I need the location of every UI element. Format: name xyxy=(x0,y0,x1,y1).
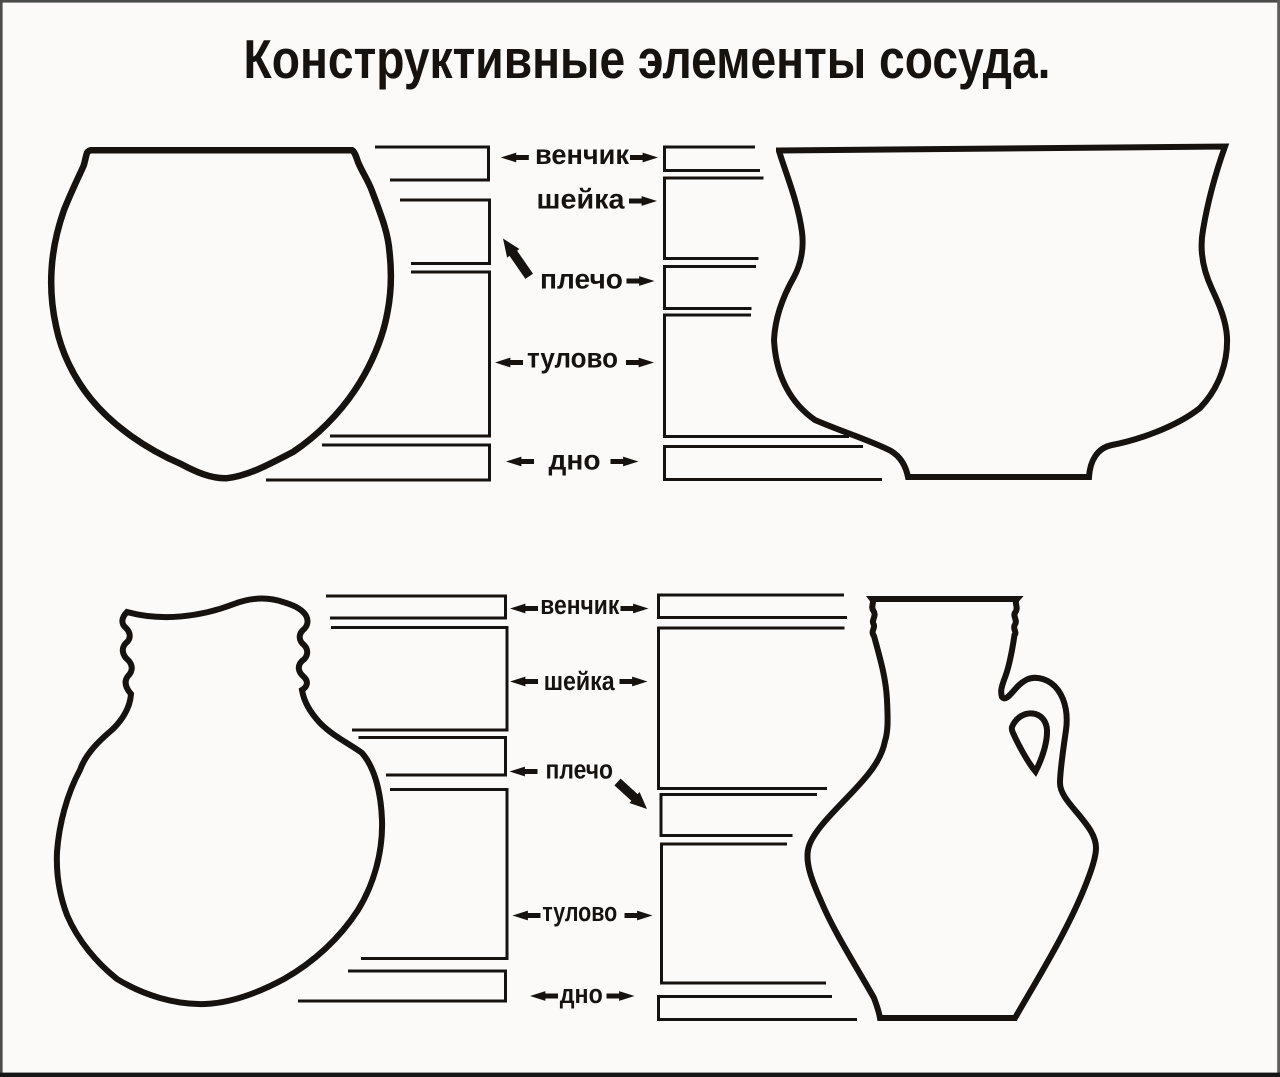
svg-text:плечо: плечо xyxy=(546,757,614,785)
svg-text:плечо: плечо xyxy=(540,264,623,295)
svg-text:тулово: тулово xyxy=(542,899,617,927)
svg-text:дно: дно xyxy=(560,981,603,1009)
svg-text:дно: дно xyxy=(549,445,601,476)
svg-text:тулово: тулово xyxy=(527,343,618,374)
svg-text:венчик: венчик xyxy=(535,139,630,170)
svg-text:шейка: шейка xyxy=(537,184,625,215)
svg-text:венчик: венчик xyxy=(540,592,619,620)
svg-text:шейка: шейка xyxy=(544,668,616,696)
svg-text:Конструктивные элементы сосуда: Конструктивные элементы сосуда. xyxy=(244,28,1051,90)
